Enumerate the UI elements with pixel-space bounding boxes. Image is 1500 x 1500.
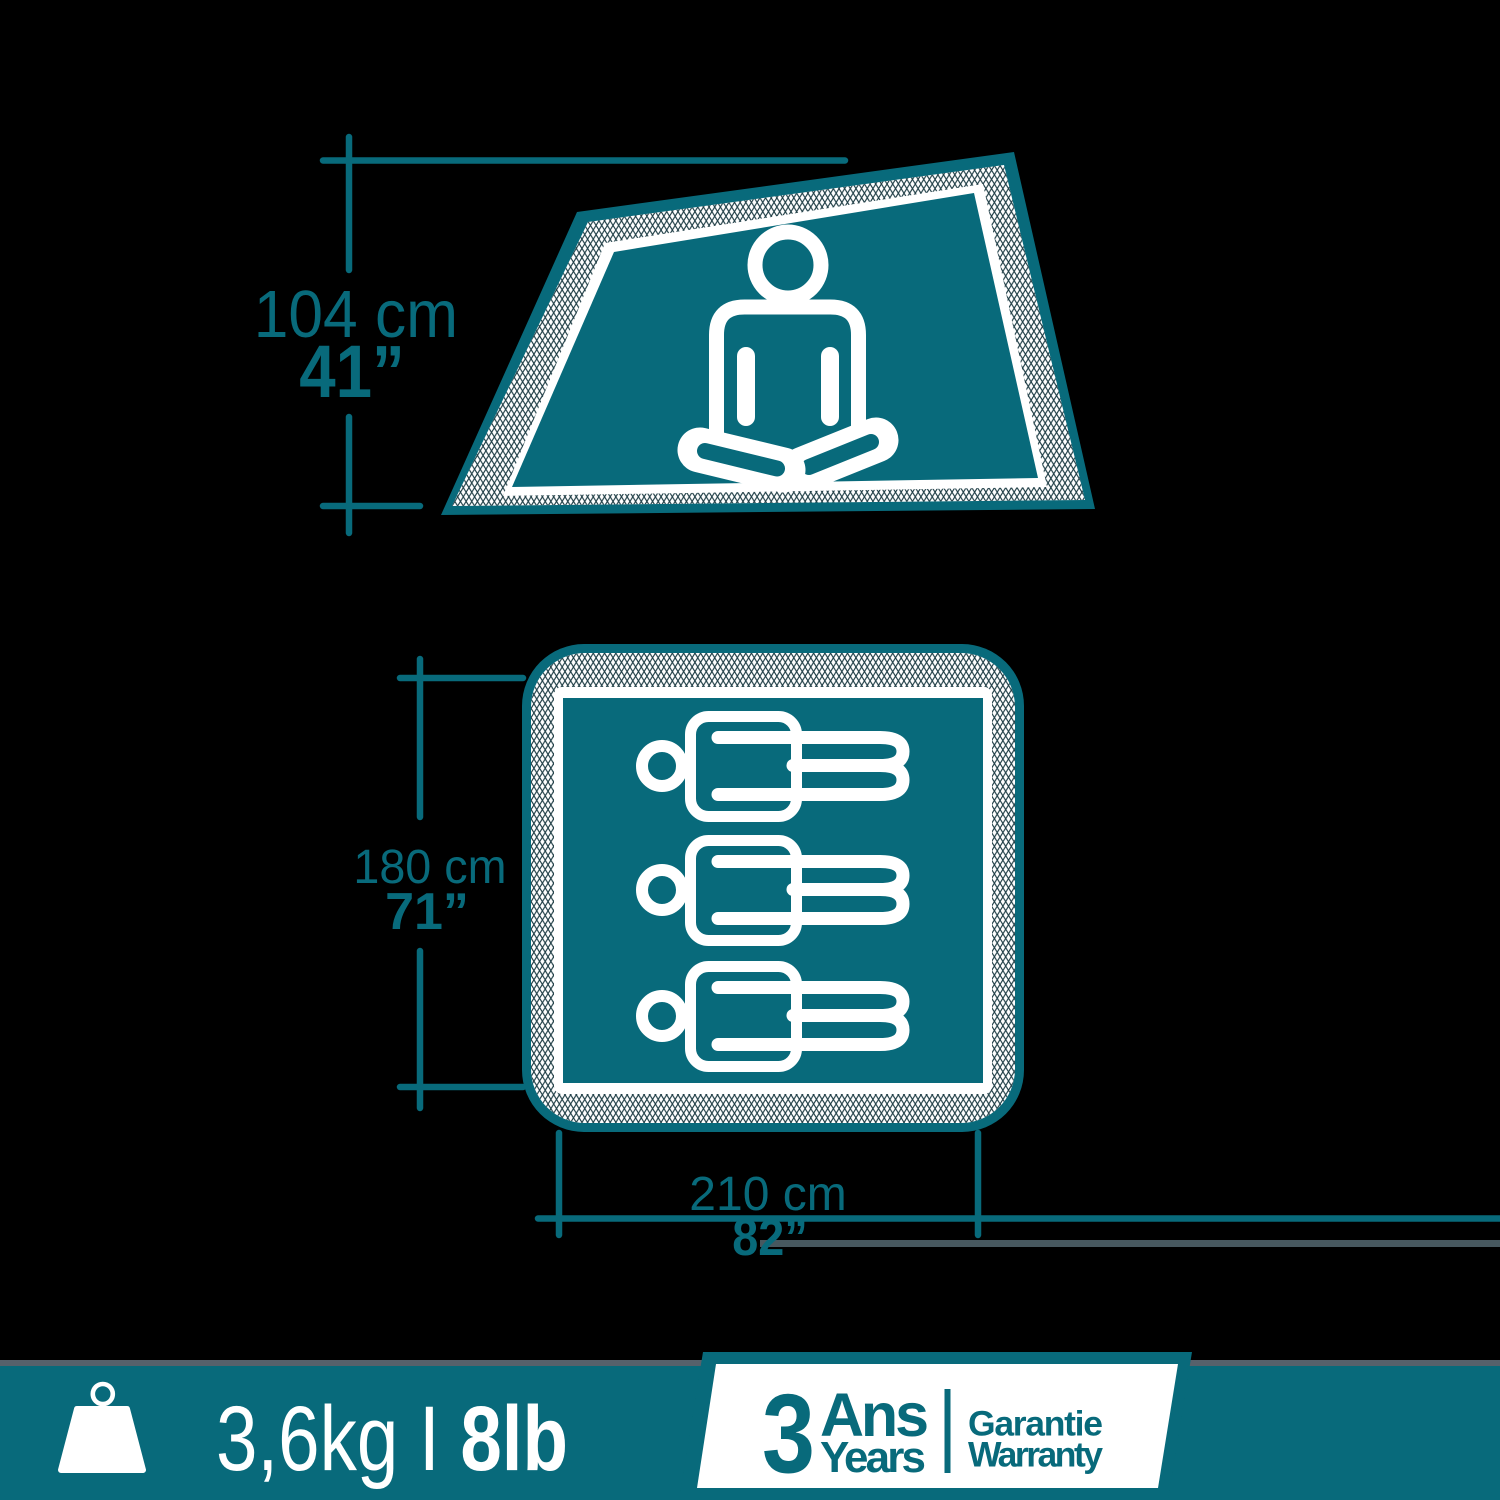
svg-text:3,6kg I 8lb: 3,6kg I 8lb	[216, 1386, 568, 1489]
svg-text:82”: 82”	[732, 1209, 807, 1267]
svg-text:41”: 41”	[299, 330, 405, 413]
svg-text:Warranty: Warranty	[968, 1435, 1103, 1475]
svg-text:71”: 71”	[385, 883, 469, 941]
svg-text:3: 3	[762, 1372, 815, 1497]
svg-text:Years: Years	[820, 1433, 926, 1482]
